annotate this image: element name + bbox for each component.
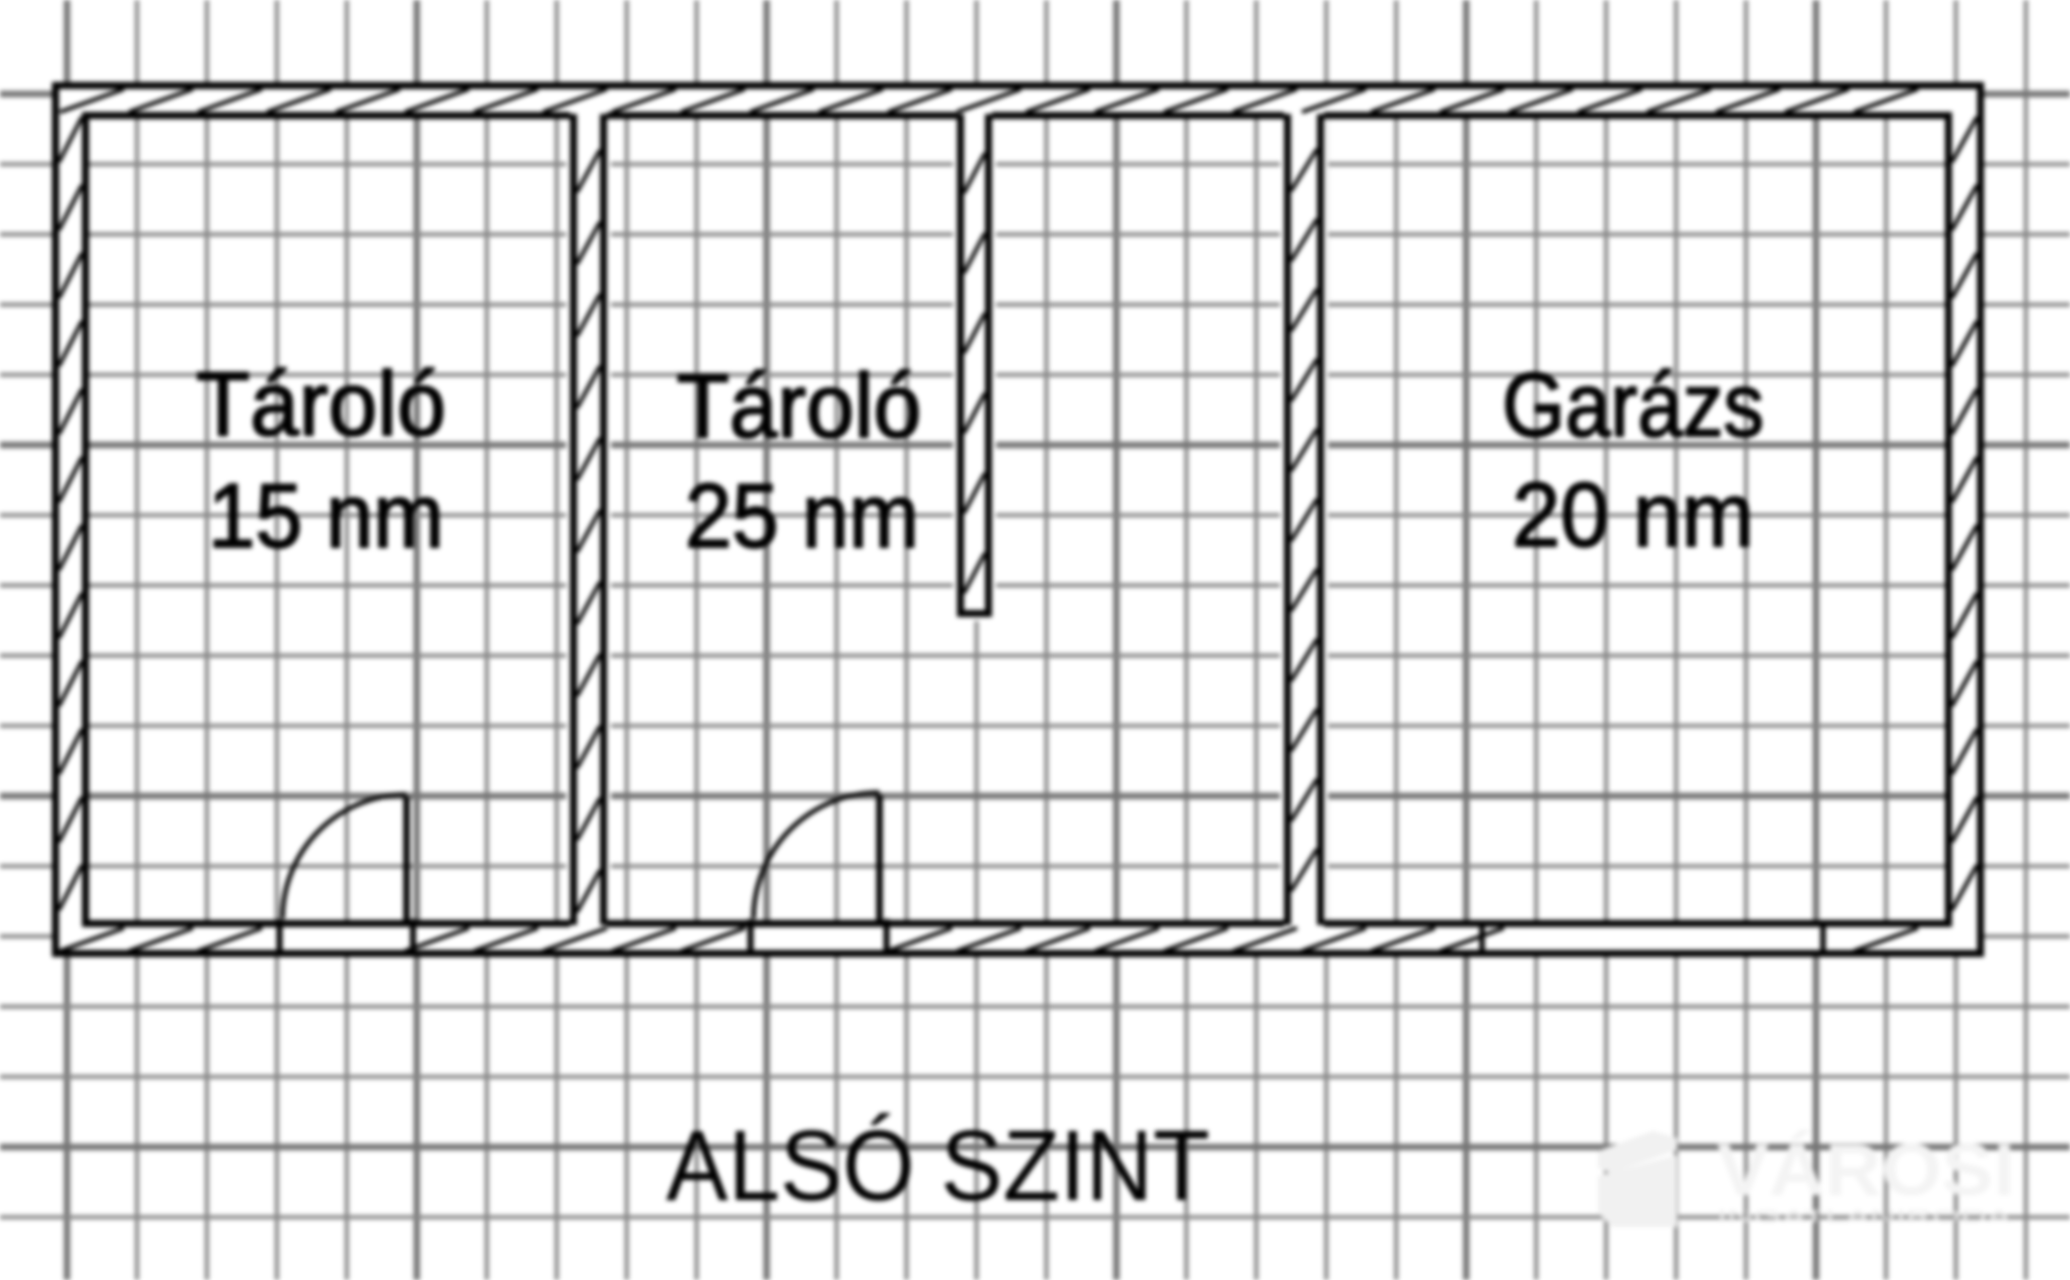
svg-text:INGATLANIRODA: INGATLANIRODA: [1717, 1206, 2012, 1226]
svg-text:ALSÓ SZINT: ALSÓ SZINT: [666, 1110, 1210, 1222]
svg-text:Garázs: Garázs: [1502, 355, 1764, 456]
svg-text:15 nm: 15 nm: [208, 466, 444, 567]
svg-text:Tároló: Tároló: [196, 354, 446, 455]
svg-text:25 nm: 25 nm: [685, 466, 919, 567]
svg-text:20 nm: 20 nm: [1512, 465, 1754, 566]
svg-text:VÁROSI: VÁROSI: [1717, 1130, 2015, 1211]
svg-text:Tároló: Tároló: [677, 356, 922, 457]
